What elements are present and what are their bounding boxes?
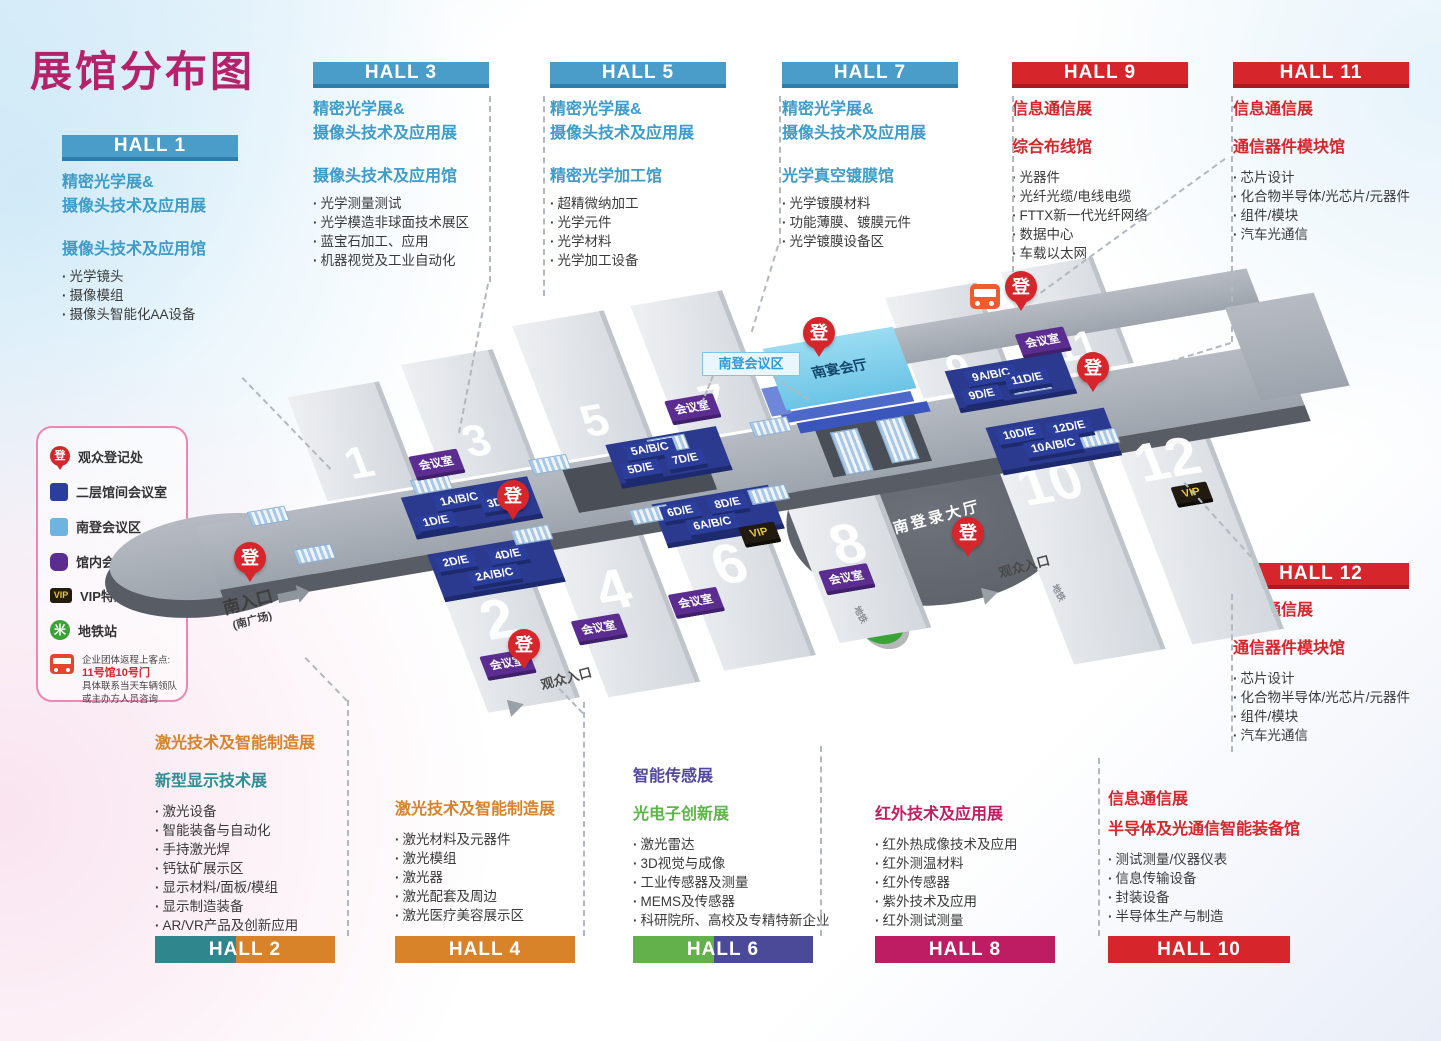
list-item: 光学镀膜材料 — [782, 194, 972, 213]
hall9-title: 综合布线馆 — [1012, 136, 1207, 160]
list-item: 汽车光通信 — [1233, 225, 1433, 244]
list-item: 激光模组 — [395, 849, 595, 868]
hall5-section: 精密光学加工馆 — [550, 162, 740, 186]
hall10-title: 半导体及光通信智能装备馆 — [1108, 818, 1318, 842]
hall5-title: 精密光学展& — [550, 98, 740, 122]
legend-label: 二层馆间会议室 — [76, 482, 167, 501]
list-item: 激光设备 — [155, 802, 360, 821]
hall6-bar: HALL 6 — [633, 936, 813, 963]
hall7-items: 光学镀膜材料功能薄膜、镀膜元件光学镀膜设备区 — [782, 194, 972, 251]
list-item: 红外传感器 — [875, 873, 1075, 892]
list-item: 显示材料/面板/模组 — [155, 878, 360, 897]
connector-line — [1231, 96, 1233, 342]
hall10-panel: 信息通信展 半导体及光通信智能装备馆 测试测量/仪器仪表信息传输设备封装设备半导… — [1108, 788, 1318, 926]
hall1-items: 光学镜头摄像模组摄像头智能化AA设备 — [62, 267, 248, 324]
registration-pin: 登 — [803, 317, 835, 349]
legend-row: 二层馆间会议室 — [50, 482, 167, 501]
connector-line — [779, 96, 781, 244]
list-item: 车载以太网 — [1012, 244, 1207, 263]
hall3-section: 摄像头技术及应用馆 — [313, 162, 503, 186]
list-item: 激光配套及周边 — [395, 887, 595, 906]
hall3-items: 光学测量测试光学模造非球面技术展区蓝宝石加工、应用机器视觉及工业自动化 — [313, 194, 503, 270]
registration-pin: 登 — [497, 480, 529, 512]
hall11-header: HALL 11 — [1233, 62, 1409, 88]
list-item: 光纤光缆/电线电缆 — [1012, 187, 1207, 206]
hall5-header: HALL 5 — [550, 62, 726, 88]
hall11-panel: HALL 11 信息通信展 通信器件模块馆 芯片设计化合物半导体/光芯片/元器件… — [1233, 62, 1433, 244]
list-item: 智能装备与自动化 — [155, 821, 360, 840]
hall5-panel: HALL 5 精密光学展& 摄像头技术及应用展 精密光学加工馆 超精微纳加工光学… — [550, 62, 740, 270]
list-item: 汽车光通信 — [1233, 726, 1433, 745]
list-item: 激光器 — [395, 868, 595, 887]
list-item: 激光材料及元器件 — [395, 830, 595, 849]
registration-pin-icon: 登 — [50, 446, 70, 466]
list-item: 紫外技术及应用 — [875, 892, 1075, 911]
connector-line — [820, 746, 822, 936]
list-item: 测试测量/仪器仪表 — [1108, 850, 1318, 869]
list-item: 光学加工设备 — [550, 251, 740, 270]
connector-line — [1231, 594, 1233, 752]
hall8-bar: HALL 8 — [875, 936, 1055, 963]
list-item: 封装设备 — [1108, 888, 1318, 907]
list-item: 功能薄膜、镀膜元件 — [782, 213, 972, 232]
list-item: FTTX新一代光纤网络 — [1012, 206, 1207, 225]
list-item: 手持激光焊 — [155, 840, 360, 859]
connector-line — [347, 700, 349, 936]
purple-square-icon — [50, 553, 68, 571]
registration-pin: 登 — [234, 542, 266, 574]
hall1-panel: HALL 1 精密光学展& 摄像头技术及应用展 摄像头技术及应用馆 光学镜头摄像… — [62, 135, 248, 324]
hall6-panel: 智能传感展 光电子创新展 激光雷达3D视觉与成像工业传感器及测量MEMS及传感器… — [633, 765, 838, 930]
hall1-title: 精密光学展& — [62, 171, 248, 195]
list-item: 激光雷达 — [633, 835, 838, 854]
list-item: 光学镜头 — [62, 267, 248, 286]
hall5-title: 摄像头技术及应用展 — [550, 122, 740, 146]
legend-label: 观众登记处 — [78, 447, 143, 466]
connector-line — [1098, 758, 1100, 936]
legend-row: 米 地铁站 — [50, 620, 117, 640]
list-item: 光学测量测试 — [313, 194, 503, 213]
hall7-panel: HALL 7 精密光学展& 摄像头技术及应用展 光学真空镀膜馆 光学镀膜材料功能… — [782, 62, 972, 251]
hall7-title: 精密光学展& — [782, 98, 972, 122]
registration-pin: 登 — [952, 517, 984, 549]
list-item: AR/VR产品及创新应用 — [155, 916, 360, 935]
list-item: 光学元件 — [550, 213, 740, 232]
list-item: 组件/模块 — [1233, 206, 1433, 225]
list-item: 摄像模组 — [62, 286, 248, 305]
hall10-title: 信息通信展 — [1108, 788, 1318, 812]
list-item: 红外测试测量 — [875, 911, 1075, 930]
dark-blue-square-icon — [50, 483, 68, 501]
list-item: 光学镀膜设备区 — [782, 232, 972, 251]
list-item: 化合物半导体/光芯片/元器件 — [1233, 688, 1433, 707]
hall10-items: 测试测量/仪器仪表信息传输设备封装设备半导体生产与制造 — [1108, 850, 1318, 926]
hall6-title: 光电子创新展 — [633, 803, 838, 827]
hall9-title: 信息通信展 — [1012, 98, 1207, 122]
legend-bus-note: 企业团体返程上客点: 11号馆10号门 具体联系当天车辆领队 或主办方人员咨询 — [50, 654, 177, 706]
hall6-title: 智能传感展 — [633, 765, 838, 789]
hall1-section: 摄像头技术及应用馆 — [62, 235, 248, 259]
connector-line — [583, 702, 585, 936]
page-title: 展馆分布图 — [30, 38, 255, 99]
list-item: 芯片设计 — [1233, 669, 1433, 688]
hall4-items: 激光材料及元器件激光模组激光器激光配套及周边激光医疗美容展示区 — [395, 830, 595, 925]
hall9-items: 光器件光纤光缆/电线电缆FTTX新一代光纤网络数据中心车载以太网 — [1012, 168, 1207, 263]
hall4-bar: HALL 4 — [395, 936, 575, 963]
hall3-title: 摄像头技术及应用展 — [313, 122, 503, 146]
hall5-items: 超精微纳加工光学元件光学材料光学加工设备 — [550, 194, 740, 270]
connector-line — [489, 96, 491, 282]
bus-note-line: 或主办方人员咨询 — [82, 694, 158, 705]
vip-badge-icon: VIP — [50, 588, 72, 603]
list-item: 蓝宝石加工、应用 — [313, 232, 503, 251]
registration-pin: 登 — [1077, 352, 1109, 384]
hall4-panel: 激光技术及智能制造展 激光材料及元器件激光模组激光器激光配套及周边激光医疗美容展… — [395, 798, 595, 925]
legend-row: 登 观众登记处 — [50, 446, 143, 466]
list-item: 光学模造非球面技术展区 — [313, 213, 503, 232]
list-item: 工业传感器及测量 — [633, 873, 838, 892]
list-item: 3D视觉与成像 — [633, 854, 838, 873]
list-item: 半导体生产与制造 — [1108, 907, 1318, 926]
list-item: 红外热成像技术及应用 — [875, 835, 1075, 854]
metro-icon: 米 — [50, 620, 70, 640]
legend-label: 南登会议区 — [76, 517, 141, 536]
bus-stop-icon — [970, 284, 1000, 309]
registration-pin: 登 — [1005, 271, 1037, 303]
connector-line — [751, 245, 779, 332]
hall2-panel: 激光技术及智能制造展 新型显示技术展 激光设备智能装备与自动化手持激光焊钙钛矿展… — [155, 732, 360, 935]
hall9-header: HALL 9 — [1012, 62, 1188, 88]
list-item: 组件/模块 — [1233, 707, 1433, 726]
list-item: 化合物半导体/光芯片/元器件 — [1233, 187, 1433, 206]
hall11-title: 信息通信展 — [1233, 98, 1433, 122]
hall11-items: 芯片设计化合物半导体/光芯片/元器件组件/模块汽车光通信 — [1233, 168, 1433, 244]
hall12-title: 通信器件模块馆 — [1233, 637, 1433, 661]
list-item: 信息传输设备 — [1108, 869, 1318, 888]
hall3-panel: HALL 3 精密光学展& 摄像头技术及应用展 摄像头技术及应用馆 光学测量测试… — [313, 62, 503, 270]
hall11-title: 通信器件模块馆 — [1233, 136, 1433, 160]
hall2-bar: HALL 2 — [155, 936, 335, 963]
hall7-header: HALL 7 — [782, 62, 958, 88]
hall2-title: 激光技术及智能制造展 — [155, 732, 360, 756]
bus-note-line: 具体联系当天车辆领队 — [82, 681, 177, 692]
hall8-panel: 红外技术及应用展 红外热成像技术及应用红外测温材料红外传感器紫外技术及应用红外测… — [875, 803, 1075, 930]
south-meeting-zone-label: 南登会议区 — [702, 352, 800, 376]
list-item: MEMS及传感器 — [633, 892, 838, 911]
hall1-title: 摄像头技术及应用展 — [62, 195, 248, 219]
list-item: 芯片设计 — [1233, 168, 1433, 187]
list-item: 光器件 — [1012, 168, 1207, 187]
list-item: 钙钛矿展示区 — [155, 859, 360, 878]
hall3-title: 精密光学展& — [313, 98, 503, 122]
connector-line — [1012, 96, 1014, 272]
vip-lounge-badge: VIP — [738, 521, 781, 547]
registration-pin: 登 — [508, 629, 540, 661]
list-item: 摄像头智能化AA设备 — [62, 305, 248, 324]
hall3-header: HALL 3 — [313, 62, 489, 88]
bus-note-gate: 11号馆10号门 — [82, 667, 150, 679]
hall12-items: 芯片设计化合物半导体/光芯片/元器件组件/模块汽车光通信 — [1233, 669, 1433, 745]
hall10-bar: HALL 10 — [1108, 936, 1290, 963]
list-item: 激光医疗美容展示区 — [395, 906, 595, 925]
light-blue-square-icon — [50, 518, 68, 536]
hall9-panel: HALL 9 信息通信展 综合布线馆 光器件光纤光缆/电线电缆FTTX新一代光纤… — [1012, 62, 1207, 263]
hall2-items: 激光设备智能装备与自动化手持激光焊钙钛矿展示区显示材料/面板/模组显示制造装备A… — [155, 802, 360, 935]
connector-line — [543, 96, 545, 296]
hall8-title: 红外技术及应用展 — [875, 803, 1075, 827]
hall4-title: 激光技术及智能制造展 — [395, 798, 595, 822]
hall1-header: HALL 1 — [62, 135, 238, 161]
bus-note-line: 企业团体返程上客点: — [82, 655, 170, 666]
list-item: 光学材料 — [550, 232, 740, 251]
list-item: 显示制造装备 — [155, 897, 360, 916]
hall2-title: 新型显示技术展 — [155, 770, 360, 794]
hall7-title: 摄像头技术及应用展 — [782, 122, 972, 146]
legend-label: 地铁站 — [78, 621, 117, 640]
hall6-items: 激光雷达3D视觉与成像工业传感器及测量MEMS及传感器科研院所、高校及专精特新企… — [633, 835, 838, 930]
list-item: 红外测温材料 — [875, 854, 1075, 873]
connector-line — [305, 657, 348, 702]
bus-icon — [50, 654, 74, 674]
hall8-items: 红外热成像技术及应用红外测温材料红外传感器紫外技术及应用红外测试测量 — [875, 835, 1075, 930]
legend-row: 南登会议区 — [50, 517, 141, 536]
hall7-section: 光学真空镀膜馆 — [782, 162, 972, 186]
list-item: 超精微纳加工 — [550, 194, 740, 213]
list-item: 机器视觉及工业自动化 — [313, 251, 503, 270]
list-item: 科研院所、高校及专精特新企业 — [633, 911, 838, 930]
